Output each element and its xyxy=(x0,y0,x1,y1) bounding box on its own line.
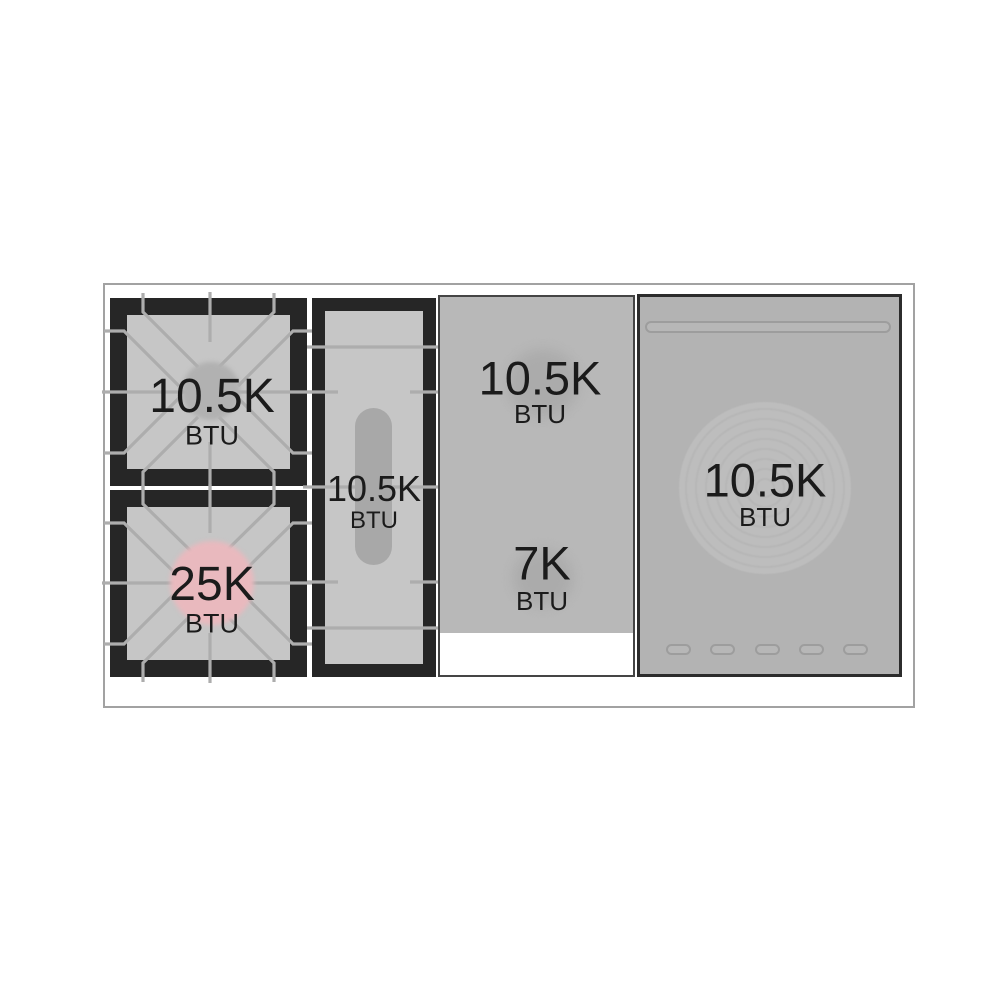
left-rear-power-label: 10.5K xyxy=(149,373,274,421)
right-power-label: 10.5K xyxy=(704,457,827,504)
left-front-power-label: 25K xyxy=(169,561,254,609)
left-front-unit-label: BTU xyxy=(185,611,239,638)
center-upper-unit-label: BTU xyxy=(514,401,566,427)
griddle-power-label: 10.5K xyxy=(327,471,421,507)
left-rear-unit-label: BTU xyxy=(185,423,239,450)
griddle-unit-label: BTU xyxy=(350,509,398,533)
vent-hole-icon xyxy=(666,644,691,655)
center-lower-unit-label: BTU xyxy=(516,588,568,614)
right-unit-label: BTU xyxy=(739,504,791,530)
vent-hole-icon xyxy=(799,644,824,655)
center-upper-power-label: 10.5K xyxy=(479,355,602,402)
cooktop-diagram: 10.5K BTU 25K BTU 10.5K BTU 10.5K BTU 7K… xyxy=(0,0,1000,1000)
vent-slot-icon xyxy=(645,321,891,333)
vent-hole-icon xyxy=(843,644,868,655)
center-lower-power-label: 7K xyxy=(513,540,571,587)
vent-hole-icon xyxy=(710,644,735,655)
vent-hole-icon xyxy=(755,644,780,655)
